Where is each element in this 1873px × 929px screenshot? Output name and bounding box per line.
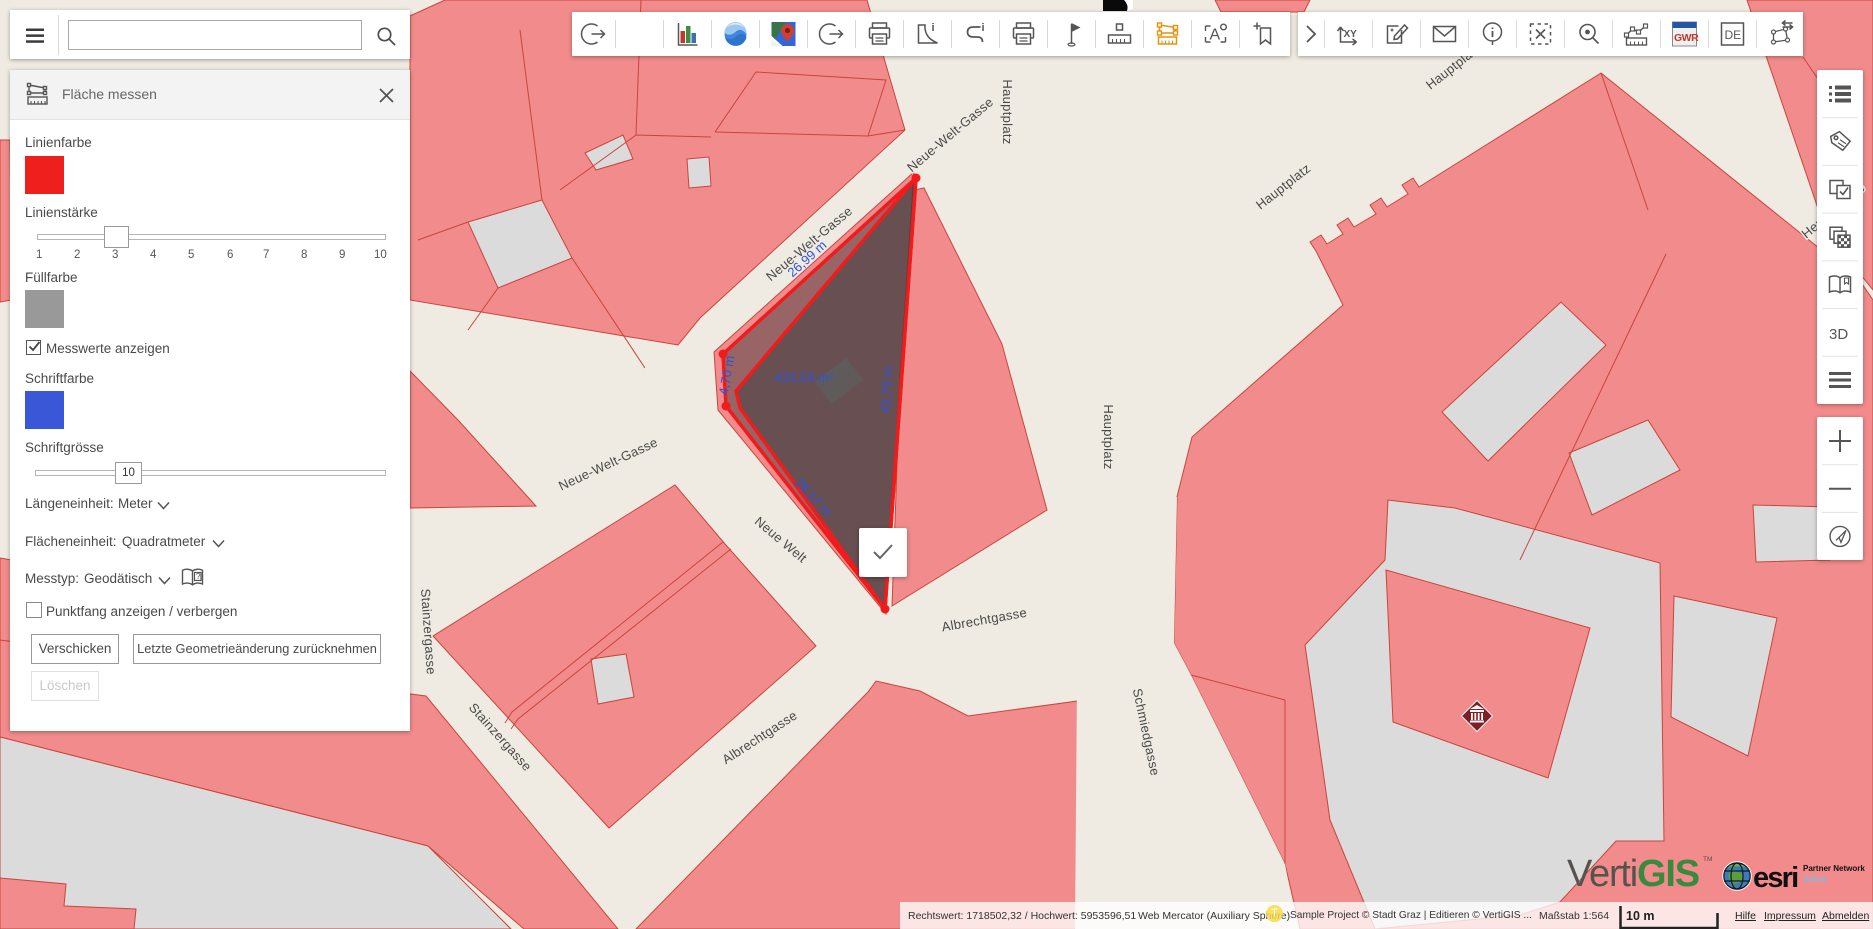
svg-text:VertiGIS: VertiGIS [1567, 853, 1699, 895]
svg-text:3D: 3D [1829, 326, 1848, 343]
svg-text:Partner Network: Partner Network [1803, 864, 1865, 873]
svg-text:i: i [932, 22, 935, 34]
svg-text:10 m: 10 m [1626, 909, 1655, 923]
svg-text:Silver: Silver [1803, 874, 1828, 884]
svg-text:GWR: GWR [1674, 32, 1699, 44]
svg-text:XY: XY [1344, 29, 1358, 40]
svg-text:435,03 m²: 435,03 m² [775, 370, 834, 385]
svg-text:DE: DE [1725, 28, 1742, 42]
svg-text:Hauptplatz: Hauptplatz [1101, 404, 1116, 469]
svg-text:i: i [982, 22, 985, 34]
svg-text:Hauptplatz: Hauptplatz [1000, 79, 1015, 144]
svg-text:esri: esri [1753, 862, 1797, 894]
svg-text:TM: TM [1703, 856, 1712, 863]
svg-text:A: A [1210, 27, 1221, 44]
svg-text:?: ? [196, 572, 201, 581]
